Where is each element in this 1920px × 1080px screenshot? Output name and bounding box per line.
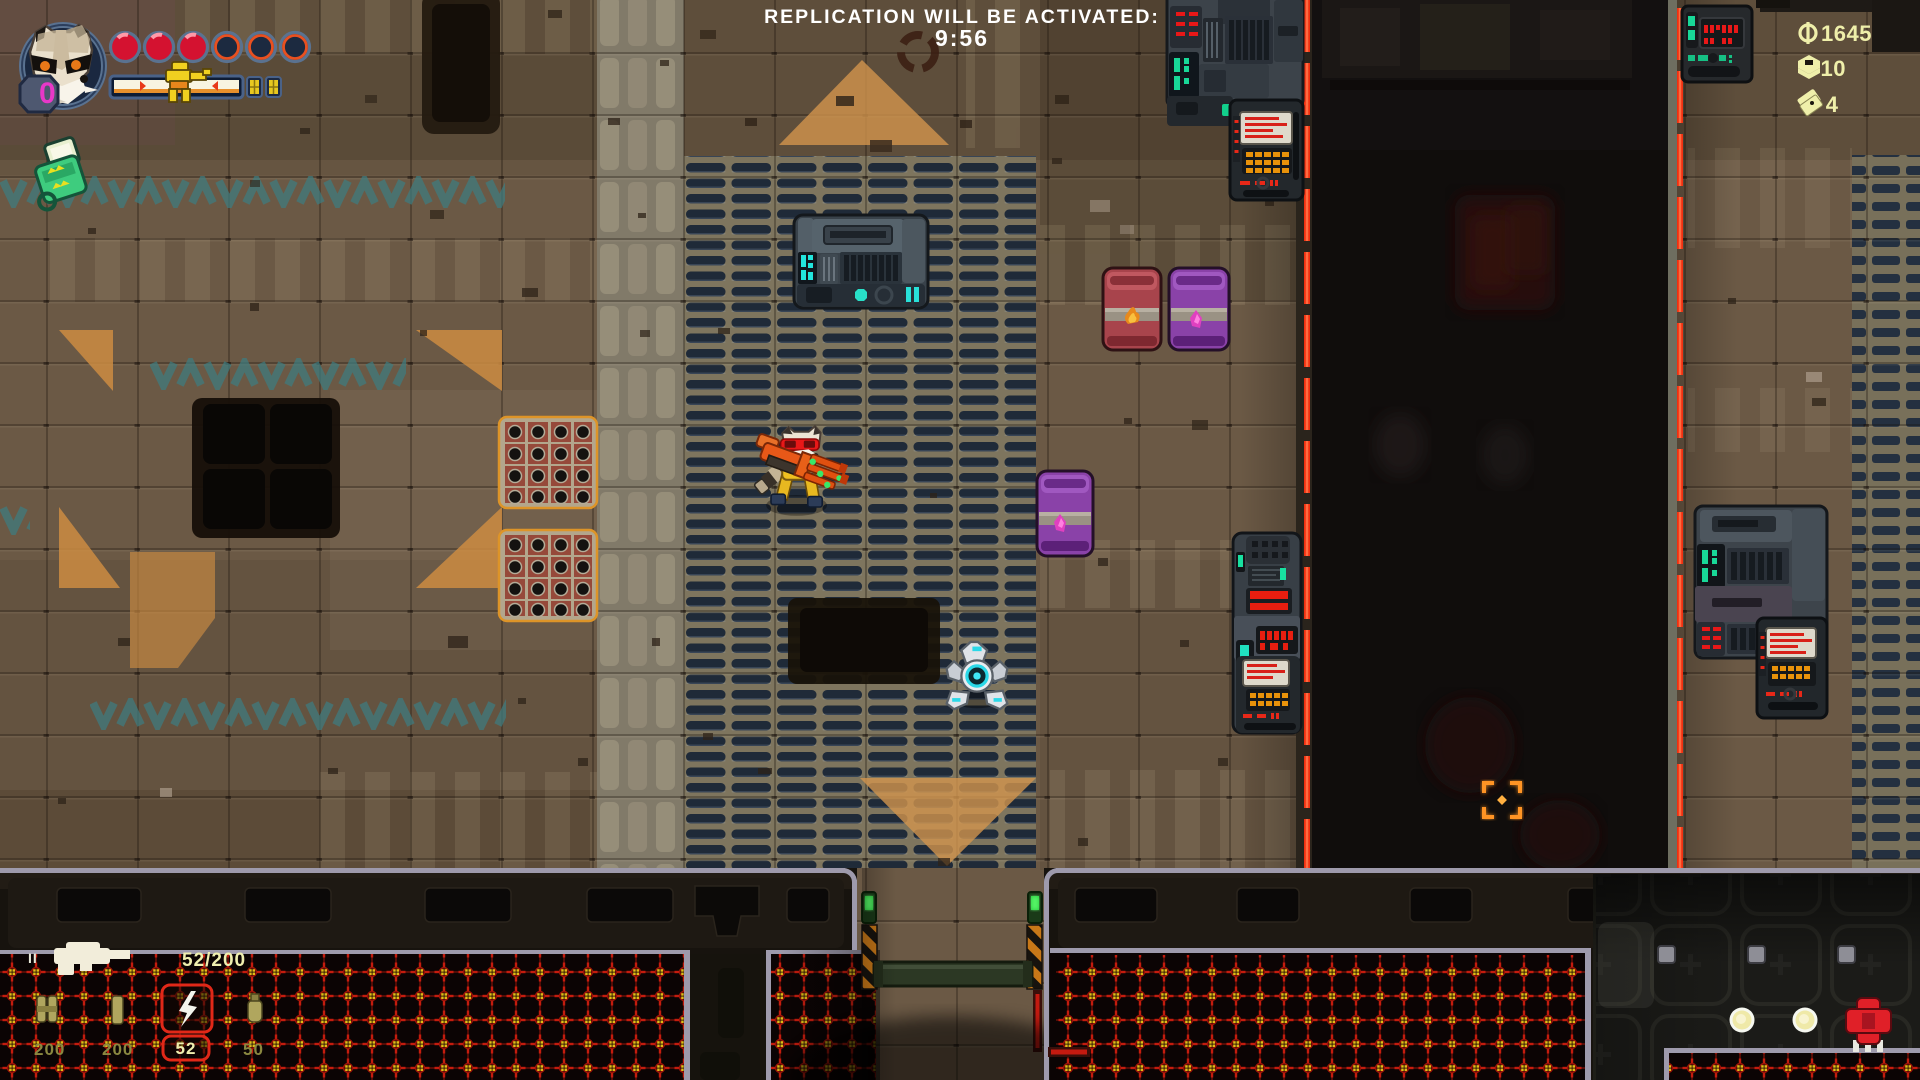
svg-text:0: 0 [39, 77, 56, 110]
svg-text:200: 200 [34, 1040, 65, 1059]
svg-text:10: 10 [1821, 56, 1846, 81]
svg-text:II: II [28, 950, 38, 966]
svg-text:200: 200 [102, 1040, 133, 1059]
svg-text:4: 4 [1826, 92, 1839, 117]
svg-text:1645: 1645 [1821, 21, 1872, 46]
svg-text:52: 52 [176, 1039, 197, 1058]
svg-text:52/200: 52/200 [182, 950, 246, 971]
svg-text:9:56: 9:56 [935, 25, 989, 51]
svg-text:50: 50 [243, 1040, 264, 1059]
